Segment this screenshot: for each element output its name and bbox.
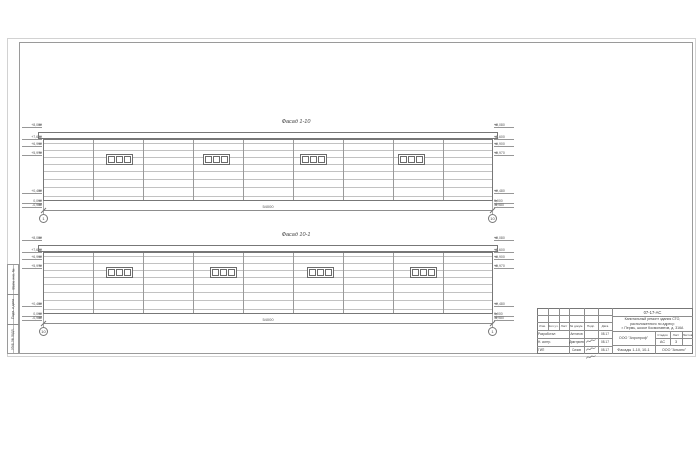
window-pane (428, 269, 435, 276)
panel-joint-line (143, 140, 144, 200)
tb-name: Дмитриев (569, 338, 584, 346)
window (307, 267, 334, 278)
tb-col-header: Кол.уч. (548, 322, 559, 330)
window-pane (408, 156, 415, 163)
dimension-value: 54000 (248, 317, 288, 322)
tb-role: Н. контр. (537, 338, 569, 346)
elevation-mark: +5,970 (22, 264, 42, 269)
tb-sheet-title: Фасады 1-10, 10-1 (612, 345, 655, 354)
signature-icon (586, 347, 596, 353)
siding-line (44, 143, 492, 144)
window-pane (318, 156, 325, 163)
elevation-mark: +0,480 (494, 189, 514, 194)
panel-joint-line (93, 140, 94, 200)
panel-joint-line (243, 140, 244, 200)
panel-joint-line (193, 140, 194, 200)
siding-line (44, 179, 492, 180)
elevation-mark: -0,980 (494, 203, 514, 208)
elevation-mark: +5,970 (494, 151, 514, 156)
siding-line (44, 187, 492, 188)
tb-date: 08.17 (598, 330, 612, 338)
window-pane (400, 156, 407, 163)
tb-doc-number: 07-17-АС (612, 308, 693, 316)
tb-org-bottom: ООО "Альянс" (655, 345, 693, 354)
window-pane (124, 269, 131, 276)
facade-title: Фасад 1-10 (251, 119, 341, 125)
panel-joint-line (243, 253, 244, 313)
signature-icon (586, 339, 596, 345)
elevation-mark: +5,970 (22, 151, 42, 156)
elevation-mark: +7,600 (494, 135, 514, 140)
window-pane (220, 269, 227, 276)
elevation-mark: +7,600 (22, 135, 42, 140)
window-pane (416, 156, 423, 163)
tb-stage-label: Стадия (655, 331, 670, 338)
elevation-mark: +8,080 (494, 123, 514, 128)
tb-list-value: 3 (670, 338, 682, 345)
siding-line (44, 263, 492, 264)
elevation-mark: +8,080 (22, 123, 42, 128)
window-pane (108, 269, 115, 276)
elevation-mark: +6,900 (22, 255, 42, 260)
window (410, 267, 437, 278)
tb-col-header: Лист (559, 322, 569, 330)
window-pane (116, 269, 123, 276)
panel-joint-line (93, 253, 94, 313)
tb-lists-value (682, 338, 693, 345)
window-pane (108, 156, 115, 163)
elevation-mark: +0,480 (494, 302, 514, 307)
siding-line (44, 196, 492, 197)
dimension-value: 54000 (248, 204, 288, 209)
siding-line (44, 150, 492, 151)
elevation-mark: +6,900 (494, 255, 514, 260)
panel-joint-line (393, 140, 394, 200)
axis-bubble: 10 (488, 214, 497, 223)
tb-date: 08.17 (598, 338, 612, 346)
margin-label: Подп. и дата (11, 299, 15, 319)
elevation-mark: +7,600 (22, 248, 42, 253)
panel-joint-line (193, 253, 194, 313)
tb-name: Сизов (569, 346, 584, 354)
parapet-band (38, 132, 498, 139)
tb-role: ГИП (537, 346, 569, 354)
title-block-line (537, 315, 612, 316)
panel-joint-line (443, 140, 444, 200)
tb-lists-label: Листов (682, 331, 693, 338)
elevation-mark: +8,080 (22, 236, 42, 241)
window-pane (221, 156, 228, 163)
tb-col-header: Изм. (537, 322, 548, 330)
axis-bubble: 10 (39, 327, 48, 336)
window-pane (124, 156, 131, 163)
margin-label-cell: Инв. № подл. (7, 324, 19, 354)
tb-col-header: № докум. (569, 322, 584, 330)
window-pane (420, 269, 427, 276)
signature-icon (586, 331, 596, 337)
dimension-line (44, 210, 492, 211)
window-pane (325, 269, 332, 276)
window (203, 154, 230, 165)
elevation-mark: -0,980 (22, 203, 42, 208)
axis-bubble: 1 (488, 327, 497, 336)
panel-joint-line (293, 253, 294, 313)
margin-label: Инв. № подл. (11, 328, 15, 349)
window-pane (116, 156, 123, 163)
panel-joint-line (293, 140, 294, 200)
siding-line (44, 300, 492, 301)
window-pane (213, 156, 220, 163)
window-pane (309, 269, 316, 276)
siding-line (44, 309, 492, 310)
dimension-line (44, 323, 492, 324)
tb-org-top: ООО "Аэропроф" (612, 331, 655, 345)
panel-joint-line (343, 253, 344, 313)
window-pane (228, 269, 235, 276)
tb-stage-value: АС (655, 338, 670, 345)
facade-title: Фасад 10-1 (251, 232, 341, 238)
tb-role: Разработал (537, 330, 569, 338)
panel-joint-line (343, 140, 344, 200)
tb-col-header: Дата (598, 322, 612, 330)
window-pane (212, 269, 219, 276)
parapet-band (38, 245, 498, 252)
window (106, 154, 133, 165)
siding-line (44, 284, 492, 285)
window-pane (412, 269, 419, 276)
margin-label-cell: Взам. инв. № (7, 264, 19, 294)
window (398, 154, 425, 165)
window-pane (302, 156, 309, 163)
siding-line (44, 171, 492, 172)
tb-date: 08.17 (598, 346, 612, 354)
tb-col-header: Подп. (584, 322, 598, 330)
elevation-mark: -0,980 (494, 316, 514, 321)
window-pane (205, 156, 212, 163)
window-pane (310, 156, 317, 163)
panel-joint-line (143, 253, 144, 313)
tb-name: Антонов (569, 330, 584, 338)
window (210, 267, 237, 278)
window (106, 267, 133, 278)
elevation-mark: +7,600 (494, 248, 514, 253)
facade-wall (43, 252, 493, 314)
facade-wall (43, 139, 493, 201)
panel-joint-line (443, 253, 444, 313)
elevation-mark: +6,900 (22, 142, 42, 147)
elevation-mark: +0,480 (22, 302, 42, 307)
margin-label: Взам. инв. № (11, 268, 15, 289)
drawing-sheet: { "facades": [ { "title": "Фасад 1-10", … (0, 0, 700, 474)
elevation-mark: +5,970 (494, 264, 514, 269)
elevation-mark: +6,900 (494, 142, 514, 147)
panel-joint-line (393, 253, 394, 313)
siding-line (44, 256, 492, 257)
margin-label-cell: Подп. и дата (7, 294, 19, 324)
tb-list-label: Лист (670, 331, 682, 338)
window-pane (317, 269, 324, 276)
window (300, 154, 327, 165)
siding-line (44, 292, 492, 293)
elevation-mark: -0,980 (22, 316, 42, 321)
elevation-mark: +8,080 (494, 236, 514, 241)
axis-bubble: 1 (39, 214, 48, 223)
elevation-mark: +0,480 (22, 189, 42, 194)
